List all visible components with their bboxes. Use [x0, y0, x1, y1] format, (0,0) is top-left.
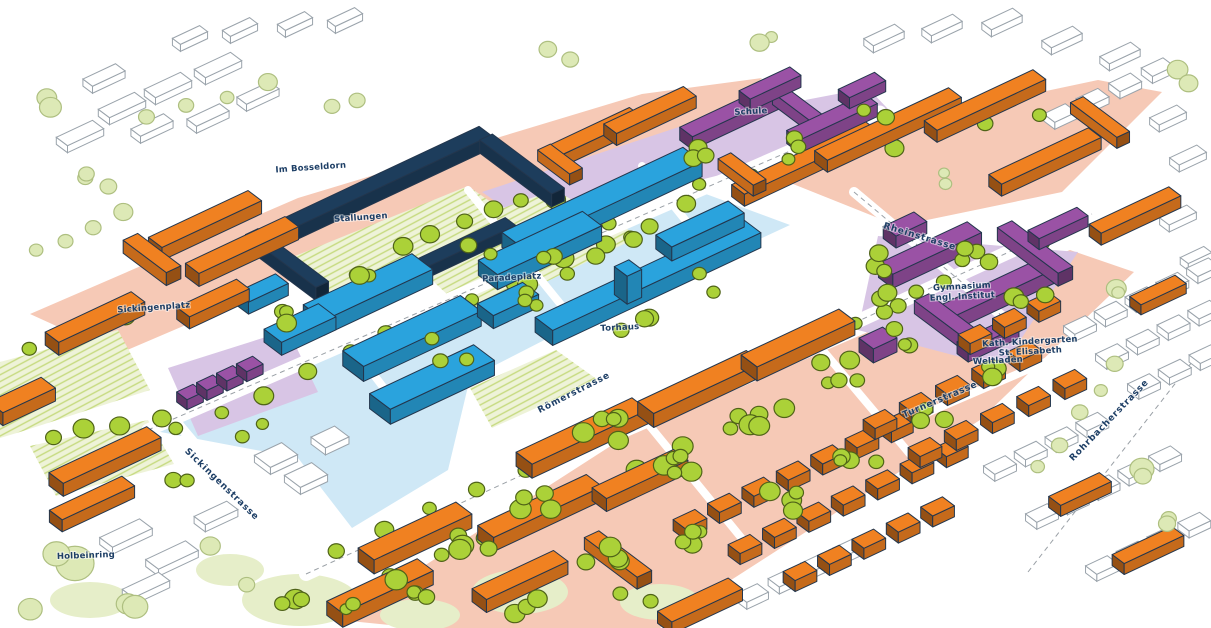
- tree: [215, 407, 228, 419]
- tree: [254, 387, 274, 405]
- tree: [328, 544, 344, 559]
- tree: [122, 595, 147, 618]
- tree: [73, 419, 94, 438]
- tree: [1112, 287, 1125, 298]
- tree: [169, 422, 183, 434]
- map-label-gymnasium: GymnasiumEngl. Institut: [929, 280, 995, 303]
- tree: [539, 41, 557, 57]
- tree: [707, 286, 720, 298]
- tree: [641, 219, 658, 234]
- tree: [58, 235, 73, 248]
- map-label-holbeinring: Holbeinring: [57, 550, 115, 562]
- tree: [29, 244, 42, 256]
- tree: [457, 214, 473, 228]
- tree: [114, 203, 133, 220]
- tree: [692, 267, 706, 279]
- tree: [39, 97, 61, 117]
- tree: [886, 322, 903, 337]
- masterplan-illustration: Im BosseldornStallungenParadeplatzTorhau…: [0, 0, 1211, 628]
- tree: [516, 490, 532, 505]
- tree: [277, 314, 297, 332]
- tree: [577, 554, 595, 570]
- tree: [484, 201, 503, 218]
- tree: [22, 342, 36, 355]
- tree: [200, 537, 220, 555]
- tree: [324, 99, 340, 113]
- tree: [857, 104, 870, 116]
- tree: [878, 284, 897, 301]
- tree: [460, 238, 477, 253]
- tree: [258, 74, 277, 91]
- tree: [608, 431, 628, 449]
- tree: [110, 417, 130, 435]
- tree: [587, 248, 605, 264]
- tree: [165, 472, 182, 487]
- tree: [180, 474, 194, 487]
- tree: [812, 354, 830, 370]
- tree: [831, 373, 847, 388]
- tree: [18, 598, 42, 619]
- tree: [877, 264, 892, 277]
- tree: [79, 167, 95, 181]
- tree: [239, 577, 255, 591]
- tree: [749, 417, 770, 436]
- tree: [518, 294, 532, 306]
- tree: [153, 410, 172, 427]
- tree: [256, 418, 268, 429]
- tree: [513, 194, 528, 207]
- tree: [100, 179, 117, 194]
- tree: [562, 52, 579, 67]
- tree: [760, 482, 781, 501]
- tree: [537, 251, 551, 264]
- tree: [909, 285, 924, 298]
- tree: [750, 34, 769, 51]
- tree: [293, 592, 309, 607]
- tree: [572, 423, 594, 443]
- tree: [433, 354, 448, 368]
- tree: [1037, 287, 1054, 303]
- tree: [46, 430, 62, 444]
- tree: [877, 109, 894, 124]
- tree: [898, 339, 911, 351]
- tree: [774, 399, 795, 418]
- masterplan-canvas: Im BosseldornStallungenParadeplatzTorhau…: [0, 0, 1211, 628]
- tree: [1072, 405, 1088, 420]
- tree: [983, 368, 1002, 385]
- tree: [425, 332, 439, 344]
- tree: [840, 351, 860, 369]
- tree: [468, 482, 484, 497]
- tree: [685, 524, 701, 539]
- tree: [1051, 438, 1067, 453]
- tree: [139, 110, 155, 124]
- tree: [935, 411, 953, 427]
- tree: [220, 91, 234, 103]
- tree: [536, 486, 553, 502]
- tree: [460, 353, 474, 366]
- tree: [599, 537, 621, 557]
- map-label-torhaus: Torhaus: [600, 322, 639, 334]
- tree: [1158, 516, 1175, 531]
- tree: [677, 195, 696, 212]
- tree: [697, 148, 714, 163]
- tree: [484, 248, 497, 260]
- tree: [870, 245, 888, 262]
- tree: [434, 548, 449, 561]
- map-label-im-bosseldorn: Im Bosseldorn: [275, 161, 346, 176]
- tree: [299, 363, 317, 379]
- tree: [939, 168, 950, 178]
- tree: [528, 590, 548, 608]
- tree: [782, 154, 795, 165]
- tree: [350, 267, 370, 285]
- tree: [418, 590, 434, 605]
- tree: [957, 241, 974, 256]
- tree: [1031, 461, 1045, 473]
- tree: [784, 502, 803, 519]
- tree: [673, 449, 688, 462]
- tree: [939, 178, 951, 189]
- tree: [1032, 109, 1046, 121]
- tree: [1179, 75, 1198, 92]
- tree: [850, 374, 865, 387]
- tree: [869, 455, 884, 468]
- tree: [681, 462, 702, 481]
- tree: [178, 99, 193, 113]
- tree: [1013, 295, 1028, 309]
- tree: [723, 422, 737, 435]
- tree: [275, 597, 290, 611]
- tree: [560, 267, 574, 280]
- tree: [1134, 468, 1151, 484]
- tree: [1094, 385, 1107, 397]
- tree: [541, 500, 561, 518]
- tree: [235, 430, 249, 442]
- tree: [346, 597, 361, 610]
- tree: [393, 238, 413, 256]
- tree: [789, 486, 803, 499]
- tree: [791, 140, 806, 153]
- tree: [85, 221, 101, 235]
- tree: [480, 541, 497, 556]
- tree: [449, 539, 471, 559]
- tree: [667, 466, 681, 479]
- tree: [1106, 356, 1123, 371]
- tree: [349, 93, 365, 107]
- tree: [643, 595, 658, 608]
- tree: [385, 570, 407, 590]
- tree: [834, 455, 847, 466]
- map-label-schule: Schule: [734, 106, 768, 118]
- tree: [613, 587, 628, 600]
- tree: [606, 412, 621, 425]
- tree: [420, 226, 439, 243]
- tree: [625, 232, 642, 248]
